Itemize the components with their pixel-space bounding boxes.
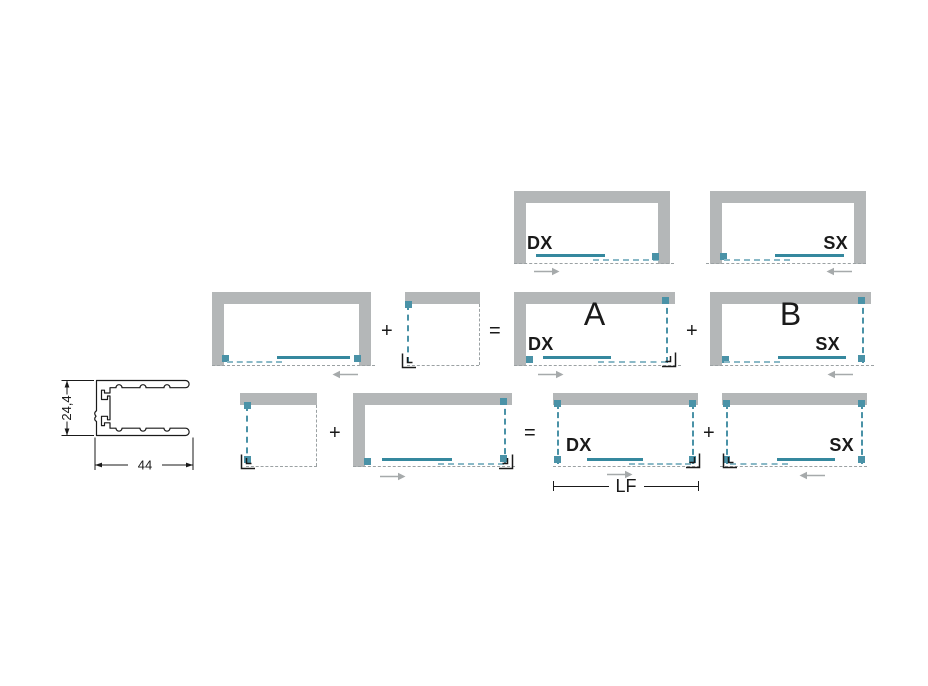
- profile-width-dim: 44: [138, 458, 152, 473]
- open-entry-line: [514, 263, 674, 264]
- open-entry-line: [720, 466, 867, 467]
- config-label-b: B: [710, 297, 871, 331]
- slide-left-arrow-icon: [827, 370, 853, 379]
- slide-left-arrow-icon: [332, 370, 358, 379]
- door-with-panel-unit: [353, 393, 512, 467]
- open-entry-line: [353, 466, 515, 467]
- top-dx-door-unit: DX: [514, 191, 670, 264]
- top-sx-door-unit: SX: [710, 191, 866, 264]
- corner-bracket-icon: [400, 352, 418, 370]
- corner-bracket-icon: [684, 452, 702, 470]
- panel-end-marker: [500, 398, 507, 405]
- fixed-panel-line: [861, 403, 863, 464]
- door-travel-line: [438, 463, 504, 465]
- profile-height-dim: 24,4: [59, 395, 74, 420]
- door-travel-line: [724, 259, 790, 261]
- door-end-marker: [652, 253, 659, 260]
- slide-left-arrow-icon: [799, 471, 825, 480]
- plus-operator: +: [329, 423, 341, 443]
- wall-top: [514, 191, 670, 203]
- plus-operator: +: [686, 321, 698, 341]
- wall-top: [240, 393, 317, 405]
- final-config-dx: DX: [553, 393, 698, 467]
- side-panel-unit-bottom: [240, 393, 317, 467]
- profile-outline: [95, 381, 189, 436]
- wall-left: [514, 191, 526, 264]
- door-travel-line: [724, 361, 780, 363]
- door-end-marker: [526, 356, 533, 363]
- panel-end-marker: [554, 400, 561, 407]
- wall-top: [553, 393, 698, 405]
- corner-bracket-icon: [721, 452, 739, 470]
- open-entry-line: [706, 263, 866, 264]
- open-side-line: [316, 405, 317, 466]
- door-panel-line: [777, 458, 835, 461]
- wall-top: [710, 191, 866, 203]
- door-travel-line: [598, 361, 667, 363]
- plus-operator: +: [381, 321, 393, 341]
- width-dimension: 44: [95, 438, 193, 473]
- dimension-line: [554, 486, 609, 487]
- orientation-label-sx: SX: [815, 335, 840, 353]
- door-travel-line: [629, 463, 691, 465]
- panel-end-marker: [244, 402, 251, 409]
- wall-right: [854, 191, 866, 264]
- equals-operator: =: [524, 423, 536, 443]
- config-label-a: A: [514, 297, 675, 331]
- wall-top: [405, 292, 480, 304]
- orientation-label-dx: DX: [528, 335, 554, 353]
- diagram-canvas: 24,4 44 DX SX: [0, 0, 928, 686]
- slide-right-arrow-icon: [534, 267, 560, 276]
- height-dimension: 24,4: [59, 381, 94, 436]
- corner-bracket-icon: [239, 453, 257, 471]
- combined-unit-b: B SX: [710, 292, 871, 366]
- profile-cross-section: 24,4 44: [58, 374, 208, 478]
- wall-top: [722, 393, 867, 405]
- panel-end-marker: [858, 400, 865, 407]
- wall-right: [658, 191, 670, 264]
- wall-top: [353, 393, 512, 405]
- fixed-panel-line: [557, 403, 559, 464]
- dimension-tick: [698, 481, 699, 491]
- sliding-door-unit: [212, 292, 371, 366]
- door-travel-line: [593, 259, 659, 261]
- plus-operator: +: [703, 423, 715, 443]
- door-panel-line: [277, 356, 350, 359]
- wall-left: [353, 393, 365, 467]
- lf-dimension-label: LF: [609, 478, 644, 494]
- panel-end-marker: [723, 400, 730, 407]
- door-panel-line: [543, 356, 611, 359]
- corner-bracket-icon: [497, 453, 515, 471]
- panel-end-marker: [405, 301, 412, 308]
- side-panel-unit: [405, 292, 480, 366]
- door-panel-line: [382, 458, 452, 461]
- orientation-label-dx: DX: [566, 436, 592, 454]
- door-panel-line: [587, 458, 643, 461]
- panel-end-marker: [689, 400, 696, 407]
- wall-top: [212, 292, 371, 304]
- panel-end-marker: [858, 456, 865, 463]
- door-travel-line: [227, 361, 282, 363]
- door-end-marker: [354, 355, 361, 362]
- open-entry-line: [710, 365, 874, 366]
- slide-left-arrow-icon: [826, 267, 852, 276]
- door-panel-line: [775, 254, 844, 257]
- lf-dimension: LF: [553, 478, 699, 494]
- dimension-line: [644, 486, 699, 487]
- open-entry-line: [553, 466, 700, 467]
- door-panel-line: [536, 254, 605, 257]
- open-entry-line: [212, 365, 375, 366]
- orientation-label-sx: SX: [829, 436, 854, 454]
- slide-right-arrow-icon: [380, 472, 406, 481]
- orientation-label-sx: SX: [823, 234, 848, 252]
- slide-right-arrow-icon: [538, 370, 564, 379]
- final-config-sx: SX: [722, 393, 867, 467]
- open-entry-line: [514, 365, 681, 366]
- door-end-marker: [364, 458, 371, 465]
- orientation-label-dx: DX: [527, 234, 553, 252]
- combined-unit-a: A DX: [514, 292, 675, 366]
- door-panel-line: [778, 356, 846, 359]
- open-side-line: [479, 304, 480, 365]
- panel-end-marker: [554, 456, 561, 463]
- corner-bracket-icon: [660, 351, 678, 369]
- panel-end-marker: [858, 355, 865, 362]
- equals-operator: =: [489, 321, 501, 341]
